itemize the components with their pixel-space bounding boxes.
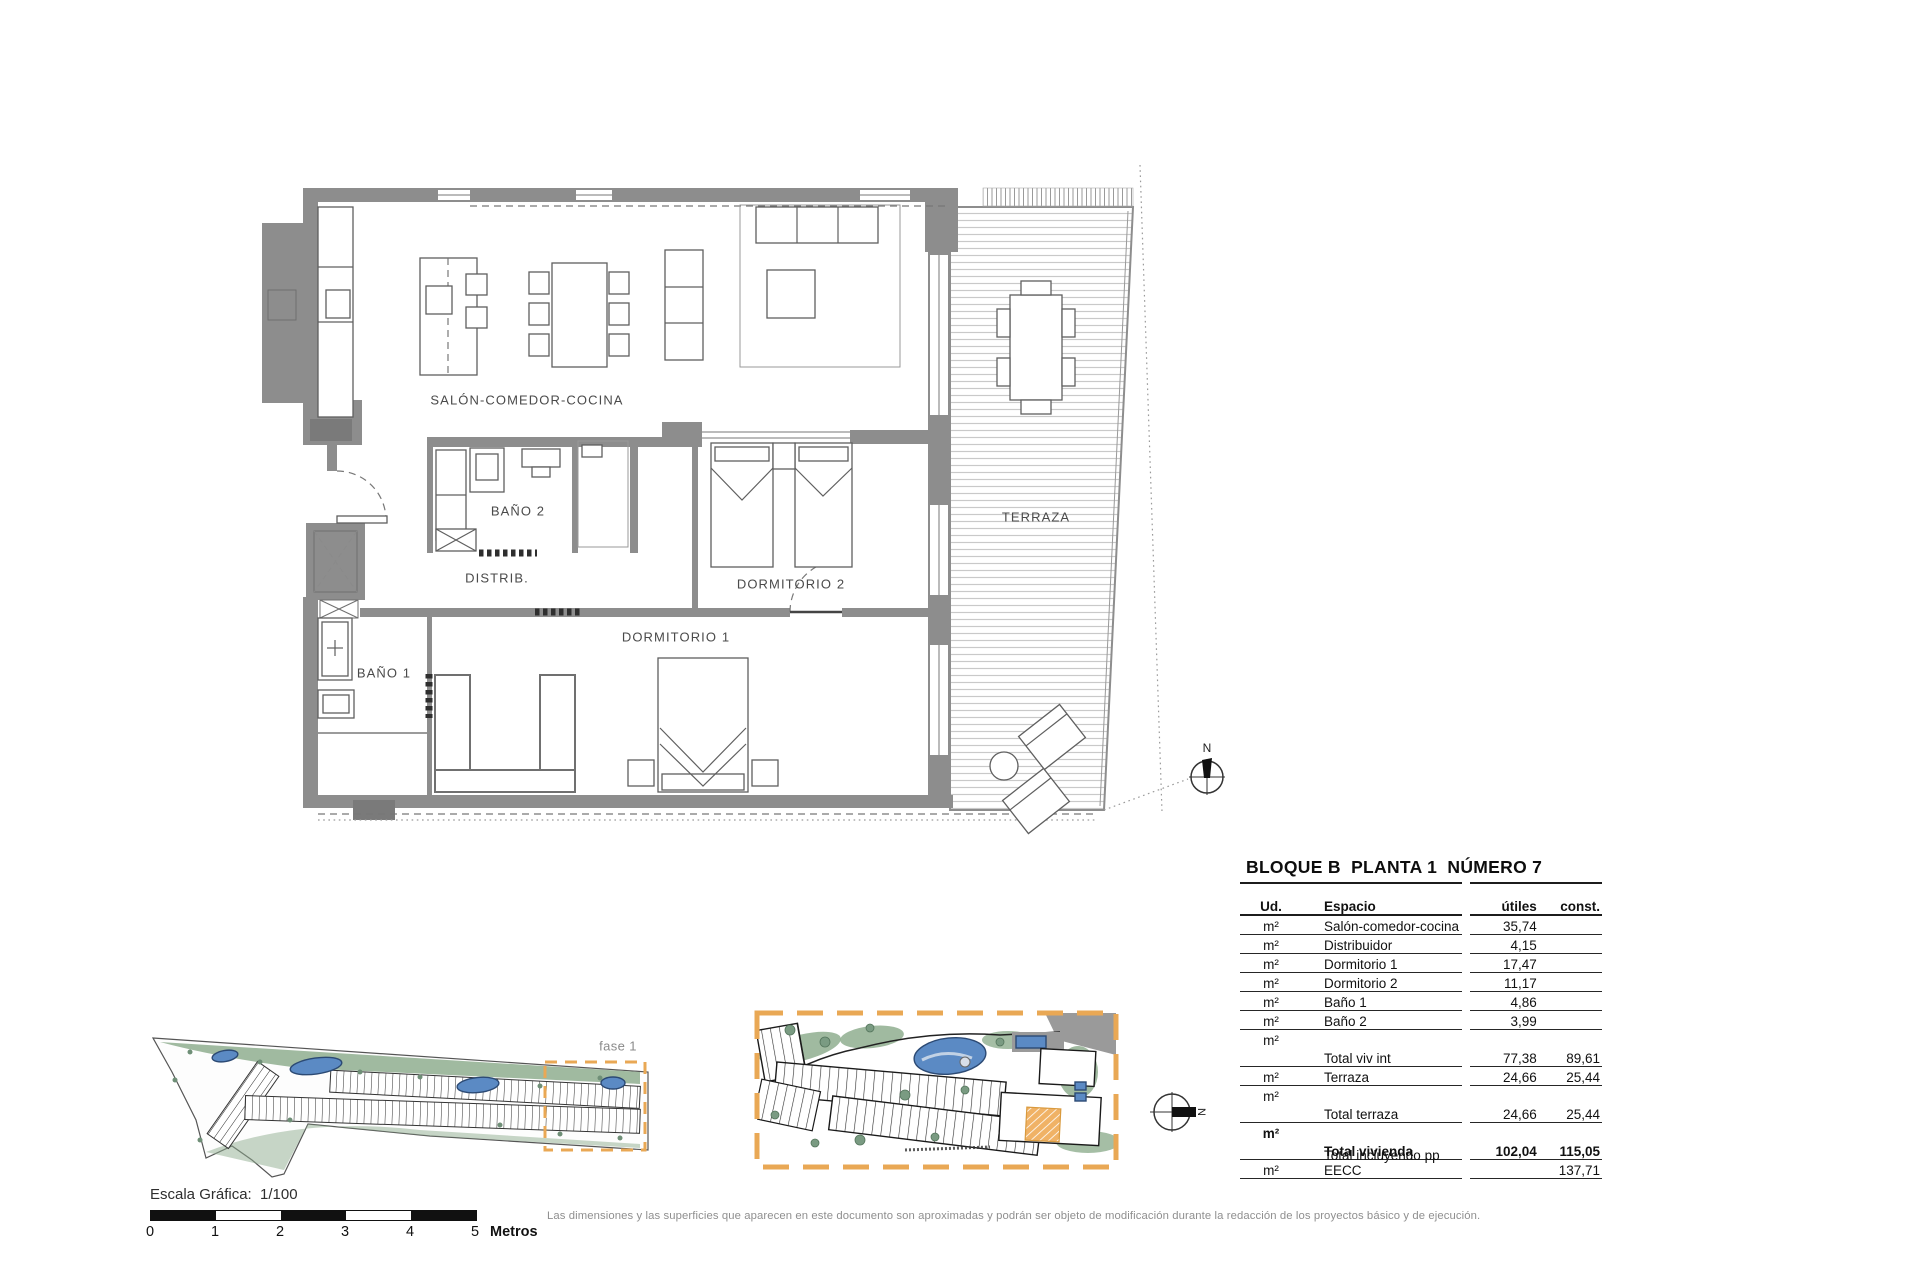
highlighted-unit: [1025, 1107, 1061, 1142]
floorplan-svg: [0, 0, 1920, 1280]
sofa-area: [665, 205, 900, 367]
scale-tick: 3: [341, 1224, 349, 1240]
walkin-closet: [435, 675, 575, 792]
room-label-terraza: TERRAZA: [1002, 510, 1070, 525]
scale-tick: 5: [471, 1224, 479, 1240]
table-row: Total viv int77,3889,61: [1240, 1048, 1602, 1067]
kitchen-counter: [318, 207, 353, 417]
table-row: m²Total incluyendo pp EECC137,71: [1240, 1160, 1602, 1179]
table-header: Ud. Espacio útiles const.: [1240, 884, 1602, 916]
north-compass: [1189, 758, 1225, 795]
wardrobe: [578, 441, 628, 547]
fase1-label: fase 1: [599, 1039, 637, 1054]
table-row: m²: [1240, 1123, 1602, 1141]
table-row: m²: [1240, 1030, 1602, 1048]
table-row: m²Baño 23,99: [1240, 1011, 1602, 1030]
disclaimer-text: Las dimensiones y las superficies que ap…: [547, 1210, 1607, 1222]
header-utiles: útiles: [1470, 899, 1541, 914]
table-title: BLOQUE B PLANTA 1 NÚMERO 7: [1246, 857, 1602, 878]
header-espacio: Espacio: [1302, 899, 1462, 914]
scale-tick: 2: [276, 1224, 284, 1240]
room-label-dormitorio2: DORMITORIO 2: [737, 577, 845, 592]
header-unit: Ud.: [1240, 899, 1302, 914]
info-table-body: m²Salón-comedor-cocina35,74m²Distribuido…: [1240, 916, 1602, 1179]
scale-tick: 1: [211, 1224, 219, 1240]
scale-tick: 4: [406, 1224, 414, 1240]
header-const: const.: [1541, 899, 1602, 914]
table-row: m²Distribuidor4,15: [1240, 935, 1602, 954]
table-row: m²Dormitorio 117,47: [1240, 954, 1602, 973]
table-row: Total terraza24,6625,44: [1240, 1104, 1602, 1123]
bathroom2-fixtures: [436, 448, 560, 551]
terrace-deck: [950, 165, 1188, 812]
room-label-dormitorio1: DORMITORIO 1: [622, 630, 730, 645]
bedroom2-beds: [711, 443, 852, 567]
table-row: m²Baño 14,86: [1240, 992, 1602, 1011]
kitchen-island: [420, 258, 487, 375]
drawing-sheet: SALÓN-COMEDOR-COCINA BAÑO 2 DISTRIB. DOR…: [0, 0, 1920, 1280]
room-label-distribuidor: DISTRIB.: [465, 571, 529, 586]
room-label-salon: SALÓN-COMEDOR-COCINA: [430, 393, 623, 408]
table-row: m²Salón-comedor-cocina35,74: [1240, 916, 1602, 935]
detail-north-letter: N: [1195, 1108, 1207, 1116]
scale-label: Escala Gráfica: 1/100: [150, 1186, 477, 1203]
scale-tick: 0: [146, 1224, 154, 1240]
table-row: m²Dormitorio 211,17: [1240, 973, 1602, 992]
scale-unit: Metros: [490, 1224, 538, 1240]
area-table: BLOQUE B PLANTA 1 NÚMERO 7 Ud. Espacio ú…: [1240, 857, 1602, 1179]
scale-bar: [150, 1210, 477, 1221]
detail-compass: [1150, 1092, 1196, 1132]
room-label-bano2: BAÑO 2: [491, 504, 545, 519]
graphic-scale: Escala Gráfica: 1/100 0 1 2 3 4 5 Metros: [150, 1186, 477, 1242]
site-detail: [753, 1013, 1196, 1167]
room-label-bano1: BAÑO 1: [357, 666, 411, 681]
table-row: m²: [1240, 1086, 1602, 1104]
bedroom1-bed: [628, 658, 778, 792]
table-row: m²Terraza24,6625,44: [1240, 1067, 1602, 1086]
north-letter: N: [1203, 741, 1212, 755]
scale-ticks: 0 1 2 3 4 5 Metros: [150, 1224, 477, 1242]
site-overview: [153, 1038, 648, 1177]
dining-table: [529, 263, 629, 367]
